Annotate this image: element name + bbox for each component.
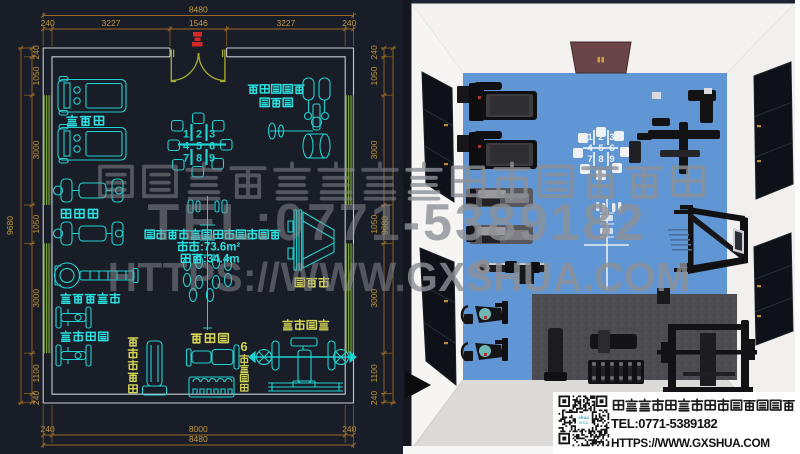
svg-text:5: 5: [196, 141, 202, 153]
svg-text:5: 5: [598, 143, 604, 154]
svg-text:1050: 1050: [31, 66, 41, 85]
svg-text:4: 4: [183, 141, 190, 153]
svg-text:6: 6: [609, 143, 614, 154]
svg-text:8480: 8480: [189, 5, 208, 15]
svg-text:3: 3: [609, 132, 614, 143]
svg-text:SHUA: SHUA: [579, 421, 589, 425]
svg-text:1546: 1546: [189, 18, 208, 28]
svg-text:8: 8: [196, 153, 202, 165]
svg-text:240: 240: [369, 45, 379, 59]
svg-text:8000: 8000: [189, 424, 208, 434]
svg-text:3000: 3000: [369, 140, 379, 159]
svg-text:240: 240: [369, 391, 379, 405]
svg-text:1100: 1100: [31, 364, 41, 383]
svg-text:8: 8: [598, 154, 603, 165]
svg-text:2: 2: [196, 129, 202, 141]
svg-text:3227: 3227: [102, 18, 121, 28]
svg-text:3227: 3227: [276, 18, 295, 28]
svg-text:6: 6: [209, 141, 215, 153]
svg-text:6: 6: [240, 339, 247, 354]
svg-text:3000: 3000: [31, 289, 41, 308]
svg-text:3: 3: [209, 129, 215, 141]
svg-text:1: 1: [183, 129, 189, 141]
svg-text:TEL:0771-5389182: TEL:0771-5389182: [611, 416, 718, 431]
svg-text:HTTPS://WWW.GXSHUA.COM: HTTPS://WWW.GXSHUA.COM: [611, 436, 770, 450]
svg-text:8480: 8480: [189, 434, 208, 444]
svg-text:7: 7: [183, 153, 189, 165]
svg-text:1050: 1050: [369, 66, 379, 85]
svg-text:240: 240: [342, 18, 356, 28]
svg-text:4: 4: [587, 143, 593, 154]
svg-text:1050: 1050: [31, 214, 41, 233]
svg-text:9: 9: [209, 153, 215, 165]
svg-text:2: 2: [598, 132, 603, 143]
svg-text:7: 7: [587, 154, 592, 165]
svg-text:9: 9: [609, 154, 614, 165]
svg-text:1100: 1100: [369, 364, 379, 383]
svg-text:1: 1: [587, 132, 593, 143]
svg-text:240: 240: [31, 45, 41, 59]
svg-text:240: 240: [41, 18, 55, 28]
svg-text:9680: 9680: [5, 216, 15, 235]
svg-text:shua: shua: [578, 415, 589, 420]
svg-text:240: 240: [41, 424, 55, 434]
svg-text:240: 240: [342, 424, 356, 434]
svg-text:3000: 3000: [31, 140, 41, 159]
svg-text:240: 240: [31, 391, 41, 405]
